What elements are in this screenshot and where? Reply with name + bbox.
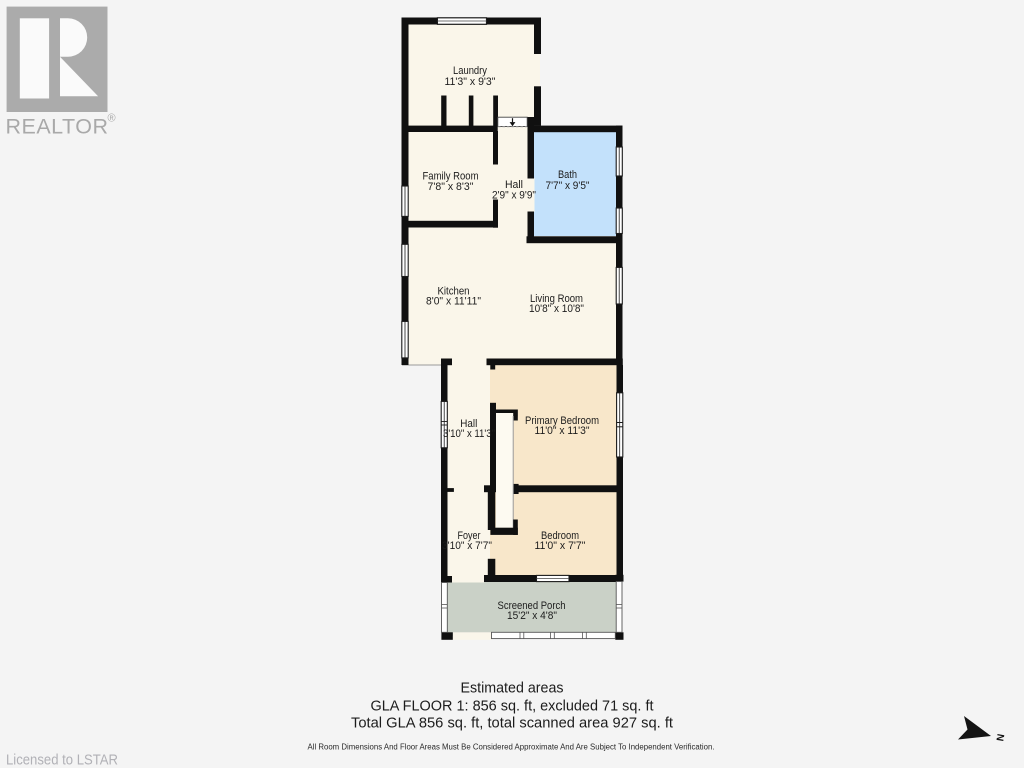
svg-text:Estimated areas: Estimated areas <box>461 680 564 697</box>
svg-text:15'2" x 4'8": 15'2" x 4'8" <box>507 610 557 622</box>
svg-text:3'10" x 11'3": 3'10" x 11'3" <box>443 428 495 440</box>
svg-text:7'7" x 9'5": 7'7" x 9'5" <box>546 180 590 192</box>
svg-text:11'3" x 9'3": 11'3" x 9'3" <box>445 76 496 88</box>
svg-text:3'10" x 7'7": 3'10" x 7'7" <box>442 540 492 552</box>
svg-text:10'8" x 10'8": 10'8" x 10'8" <box>529 303 584 315</box>
svg-text:Total GLA 856 sq. ft, total sc: Total GLA 856 sq. ft, total scanned area… <box>351 715 674 732</box>
svg-text:11'0" x 11'3": 11'0" x 11'3" <box>535 425 590 437</box>
svg-text:®: ® <box>108 113 116 125</box>
svg-text:GLA FLOOR 1: 856 sq. ft, exclu: GLA FLOOR 1: 856 sq. ft, excluded 71 sq.… <box>371 698 655 715</box>
svg-text:8'0" x 11'11": 8'0" x 11'11" <box>426 295 481 307</box>
svg-text:REALTOR: REALTOR <box>6 115 109 139</box>
svg-text:All Room Dimensions And Floor: All Room Dimensions And Floor Areas Must… <box>308 743 715 752</box>
svg-text:2'9" x 9'9": 2'9" x 9'9" <box>492 190 536 202</box>
svg-text:Licensed to LSTAR: Licensed to LSTAR <box>6 753 118 768</box>
svg-text:7'8" x 8'3": 7'8" x 8'3" <box>428 181 474 193</box>
svg-text:11'0" x 7'7": 11'0" x 7'7" <box>535 540 586 552</box>
